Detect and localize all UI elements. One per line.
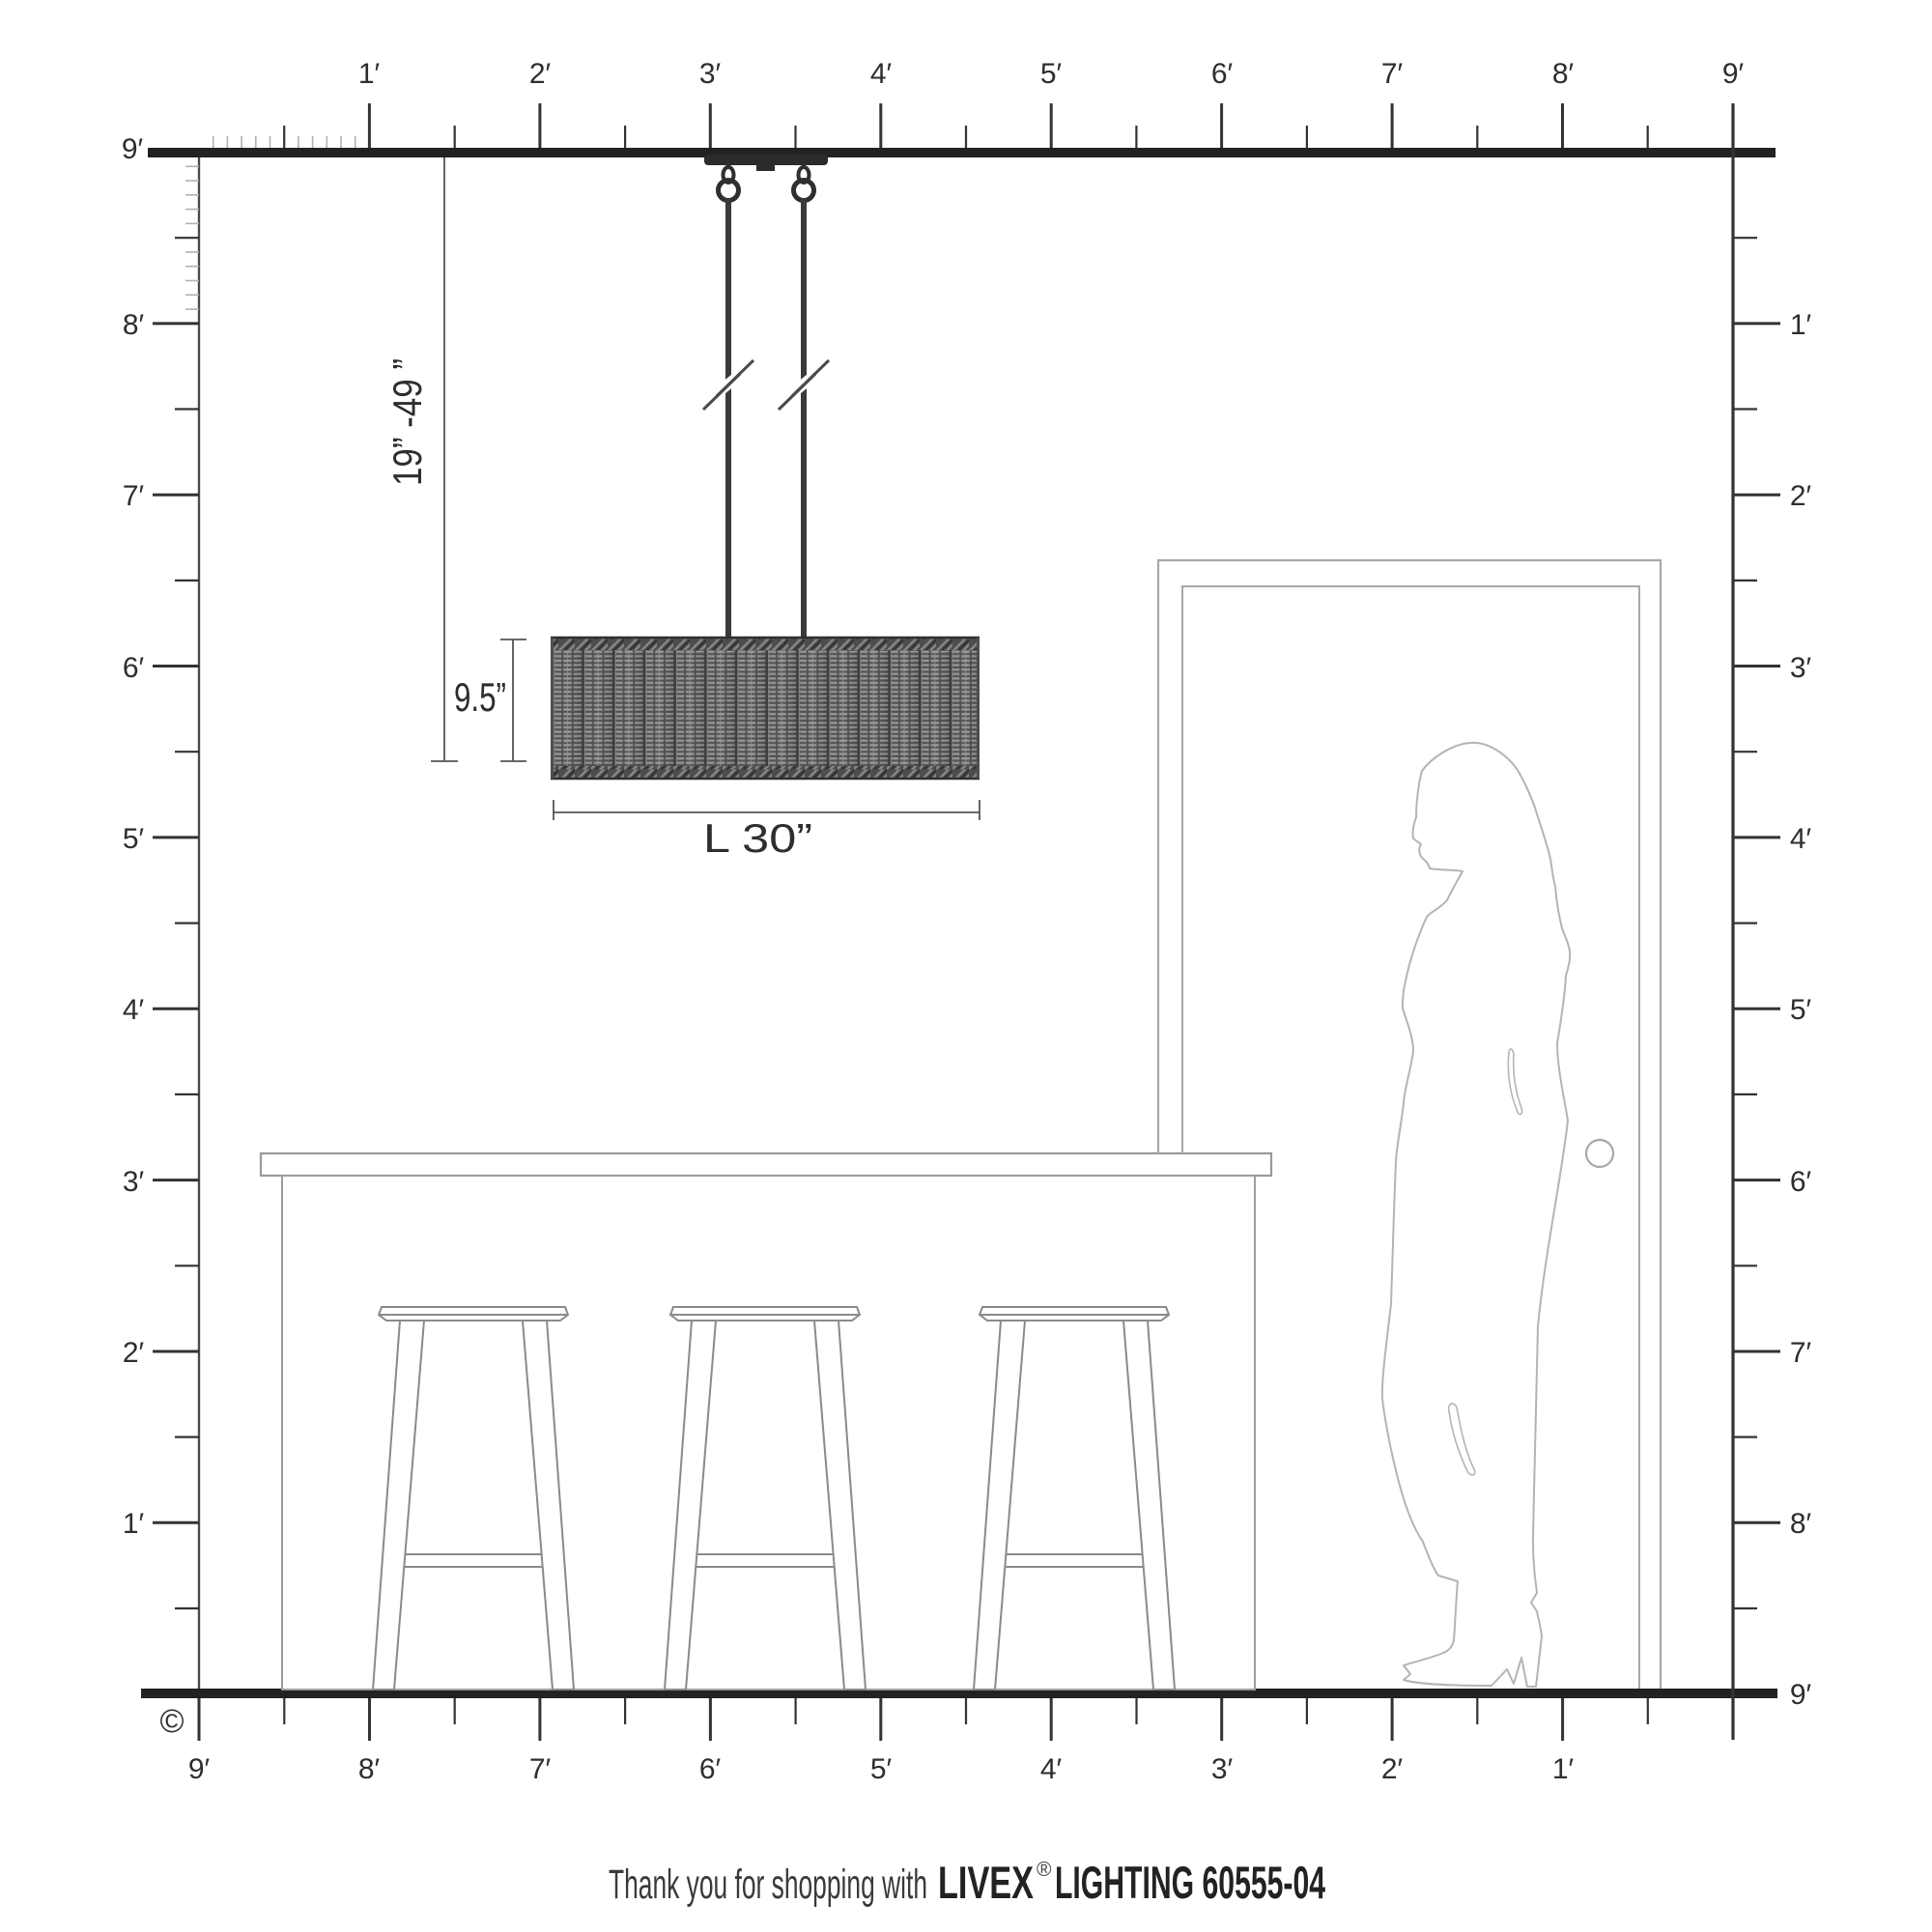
svg-text:3′: 3′: [699, 58, 722, 90]
svg-text:3′: 3′: [1790, 652, 1812, 684]
svg-text:1′: 1′: [123, 1508, 145, 1540]
svg-text:8′: 8′: [1552, 58, 1575, 90]
svg-text:5′: 5′: [870, 1753, 893, 1785]
svg-text:6′: 6′: [1211, 58, 1234, 90]
svg-text:7′: 7′: [529, 1753, 552, 1785]
svg-text:5′: 5′: [1040, 58, 1063, 90]
svg-text:6′: 6′: [699, 1753, 722, 1785]
svg-text:8′: 8′: [358, 1753, 381, 1785]
svg-text:©: ©: [159, 1703, 184, 1740]
svg-text:4′: 4′: [123, 994, 145, 1026]
svg-text:4′: 4′: [1040, 1753, 1063, 1785]
svg-text:2′: 2′: [1790, 480, 1812, 512]
svg-text:6′: 6′: [1790, 1166, 1812, 1198]
svg-text:4′: 4′: [870, 58, 893, 90]
svg-text:2′: 2′: [1381, 1753, 1404, 1785]
svg-text:9′: 9′: [1722, 58, 1745, 90]
svg-text:3′: 3′: [1211, 1753, 1234, 1785]
svg-text:Thank you for shopping withLIV: Thank you for shopping withLIVEX®LIGHTIN…: [609, 1857, 1325, 1908]
svg-text:L 30”: L 30”: [703, 815, 812, 861]
svg-text:7′: 7′: [123, 480, 145, 512]
svg-text:5′: 5′: [1790, 994, 1812, 1026]
svg-text:9′: 9′: [122, 133, 144, 165]
svg-text:9.5”: 9.5”: [454, 674, 506, 720]
svg-text:6′: 6′: [123, 652, 145, 684]
svg-text:9′: 9′: [1790, 1679, 1812, 1711]
svg-text:4′: 4′: [1790, 823, 1812, 855]
svg-text:1′: 1′: [358, 58, 381, 90]
svg-text:1′: 1′: [1790, 309, 1812, 341]
svg-text:1′: 1′: [1552, 1753, 1575, 1785]
svg-text:7′: 7′: [1790, 1337, 1812, 1369]
svg-text:2′: 2′: [529, 58, 552, 90]
svg-text:7′: 7′: [1381, 58, 1404, 90]
svg-text:3′: 3′: [123, 1166, 145, 1198]
svg-text:9′: 9′: [188, 1753, 211, 1785]
svg-text:8′: 8′: [123, 309, 145, 341]
svg-text:5′: 5′: [123, 823, 145, 855]
svg-text:19” -49 ”: 19” -49 ”: [384, 358, 430, 486]
svg-text:8′: 8′: [1790, 1508, 1812, 1540]
svg-text:2′: 2′: [123, 1337, 145, 1369]
